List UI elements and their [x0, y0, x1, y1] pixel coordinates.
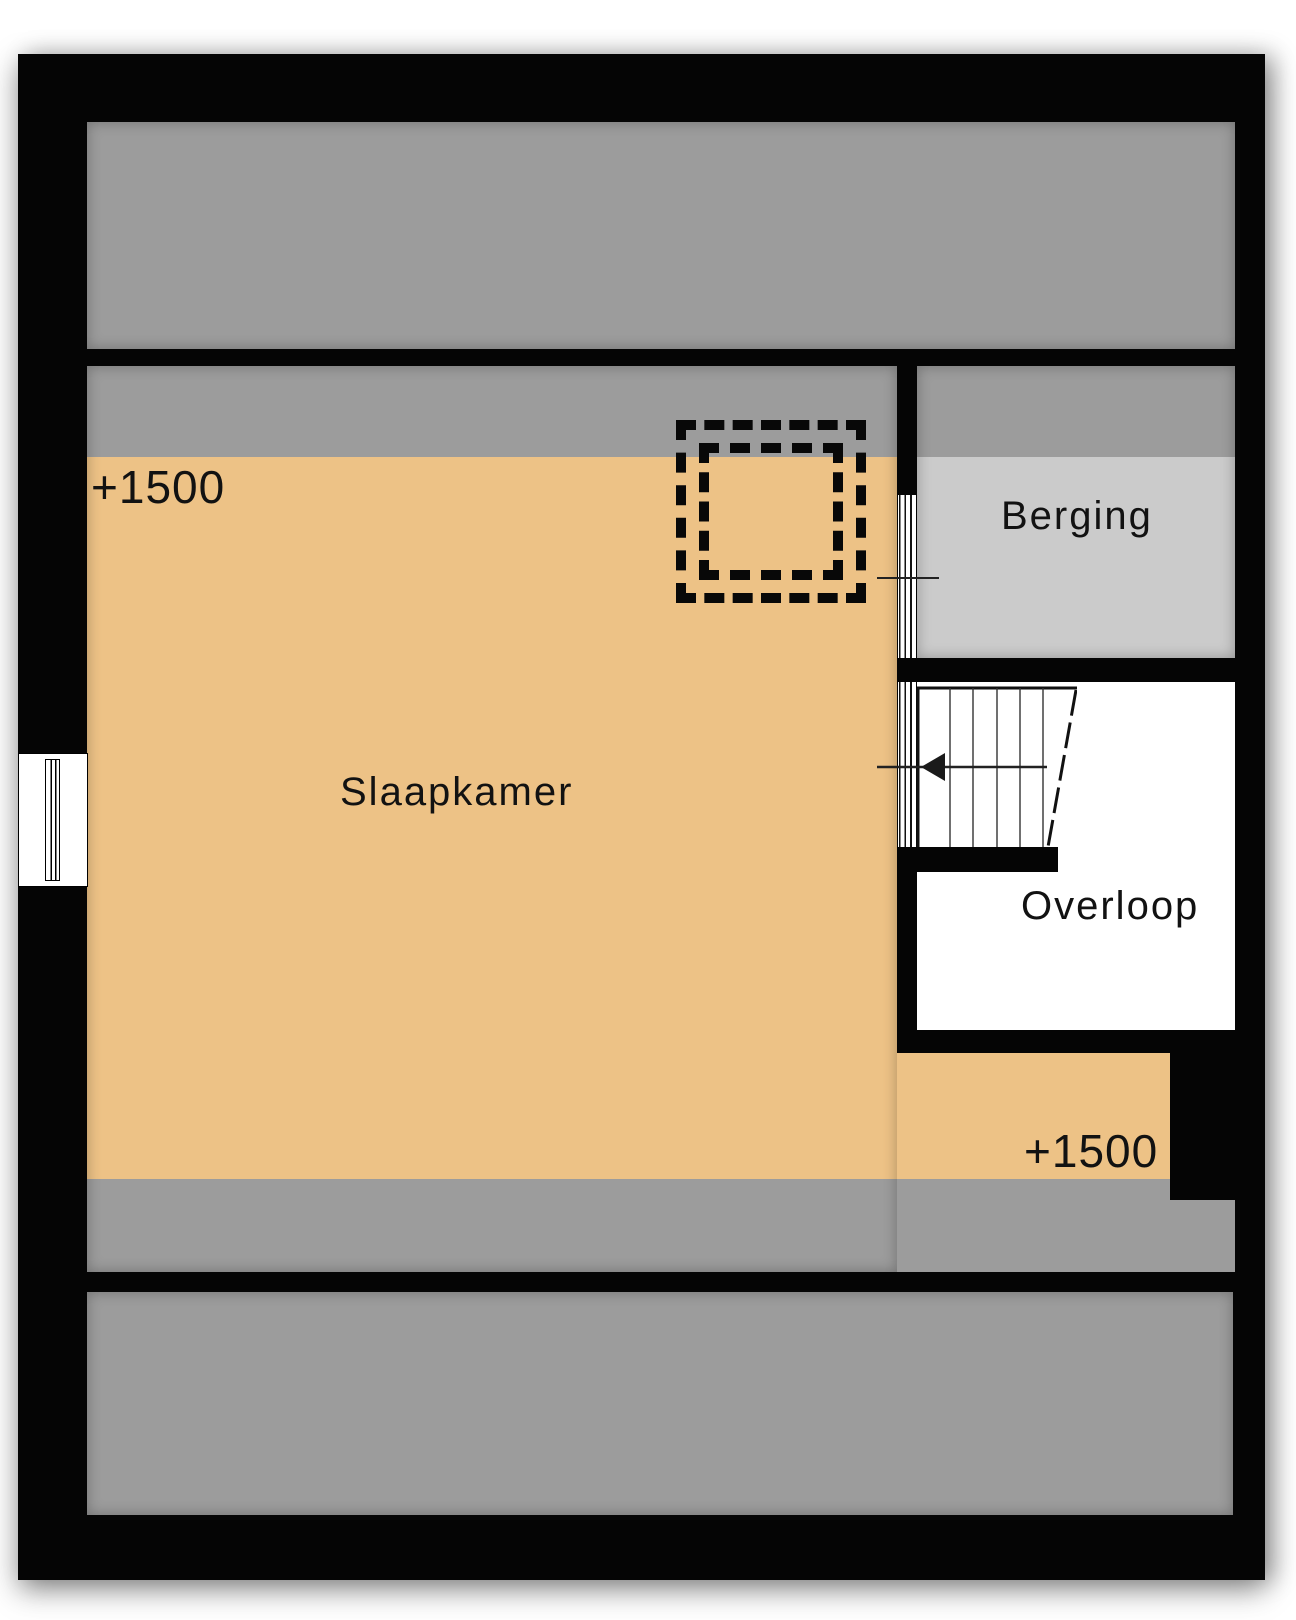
- height-annotation-bottom-right: +1500: [1024, 1128, 1158, 1174]
- skylight-dashed-icon: [676, 420, 866, 603]
- attic-space-bottom: [87, 1292, 1233, 1515]
- wall-stub-under-stairs: [897, 847, 1058, 872]
- floor-plan-canvas: +1500 Slaapkamer Berging Overloop +1500: [0, 0, 1296, 1620]
- attic-space-top: [87, 122, 1235, 349]
- window-tick-mark: [877, 577, 939, 579]
- slaapkamer-low-headroom-bottom: [87, 1179, 897, 1272]
- berging-floor: [917, 457, 1235, 658]
- room-label-overloop: Overloop: [1021, 886, 1199, 926]
- wall-block-bottom-right: [1170, 1030, 1235, 1200]
- berging-low-headroom: [917, 366, 1235, 457]
- window-glazing-icon: [45, 759, 60, 881]
- height-annotation-top-left: +1500: [91, 464, 225, 510]
- staircase-icon: [877, 682, 1077, 852]
- skylight-dashed-inner-icon: [699, 443, 843, 580]
- stair-arrow-left-icon: [921, 753, 945, 781]
- exterior-window-icon: [18, 753, 88, 887]
- room-label-berging: Berging: [1001, 496, 1153, 536]
- room-label-slaapkamer: Slaapkamer: [340, 772, 573, 812]
